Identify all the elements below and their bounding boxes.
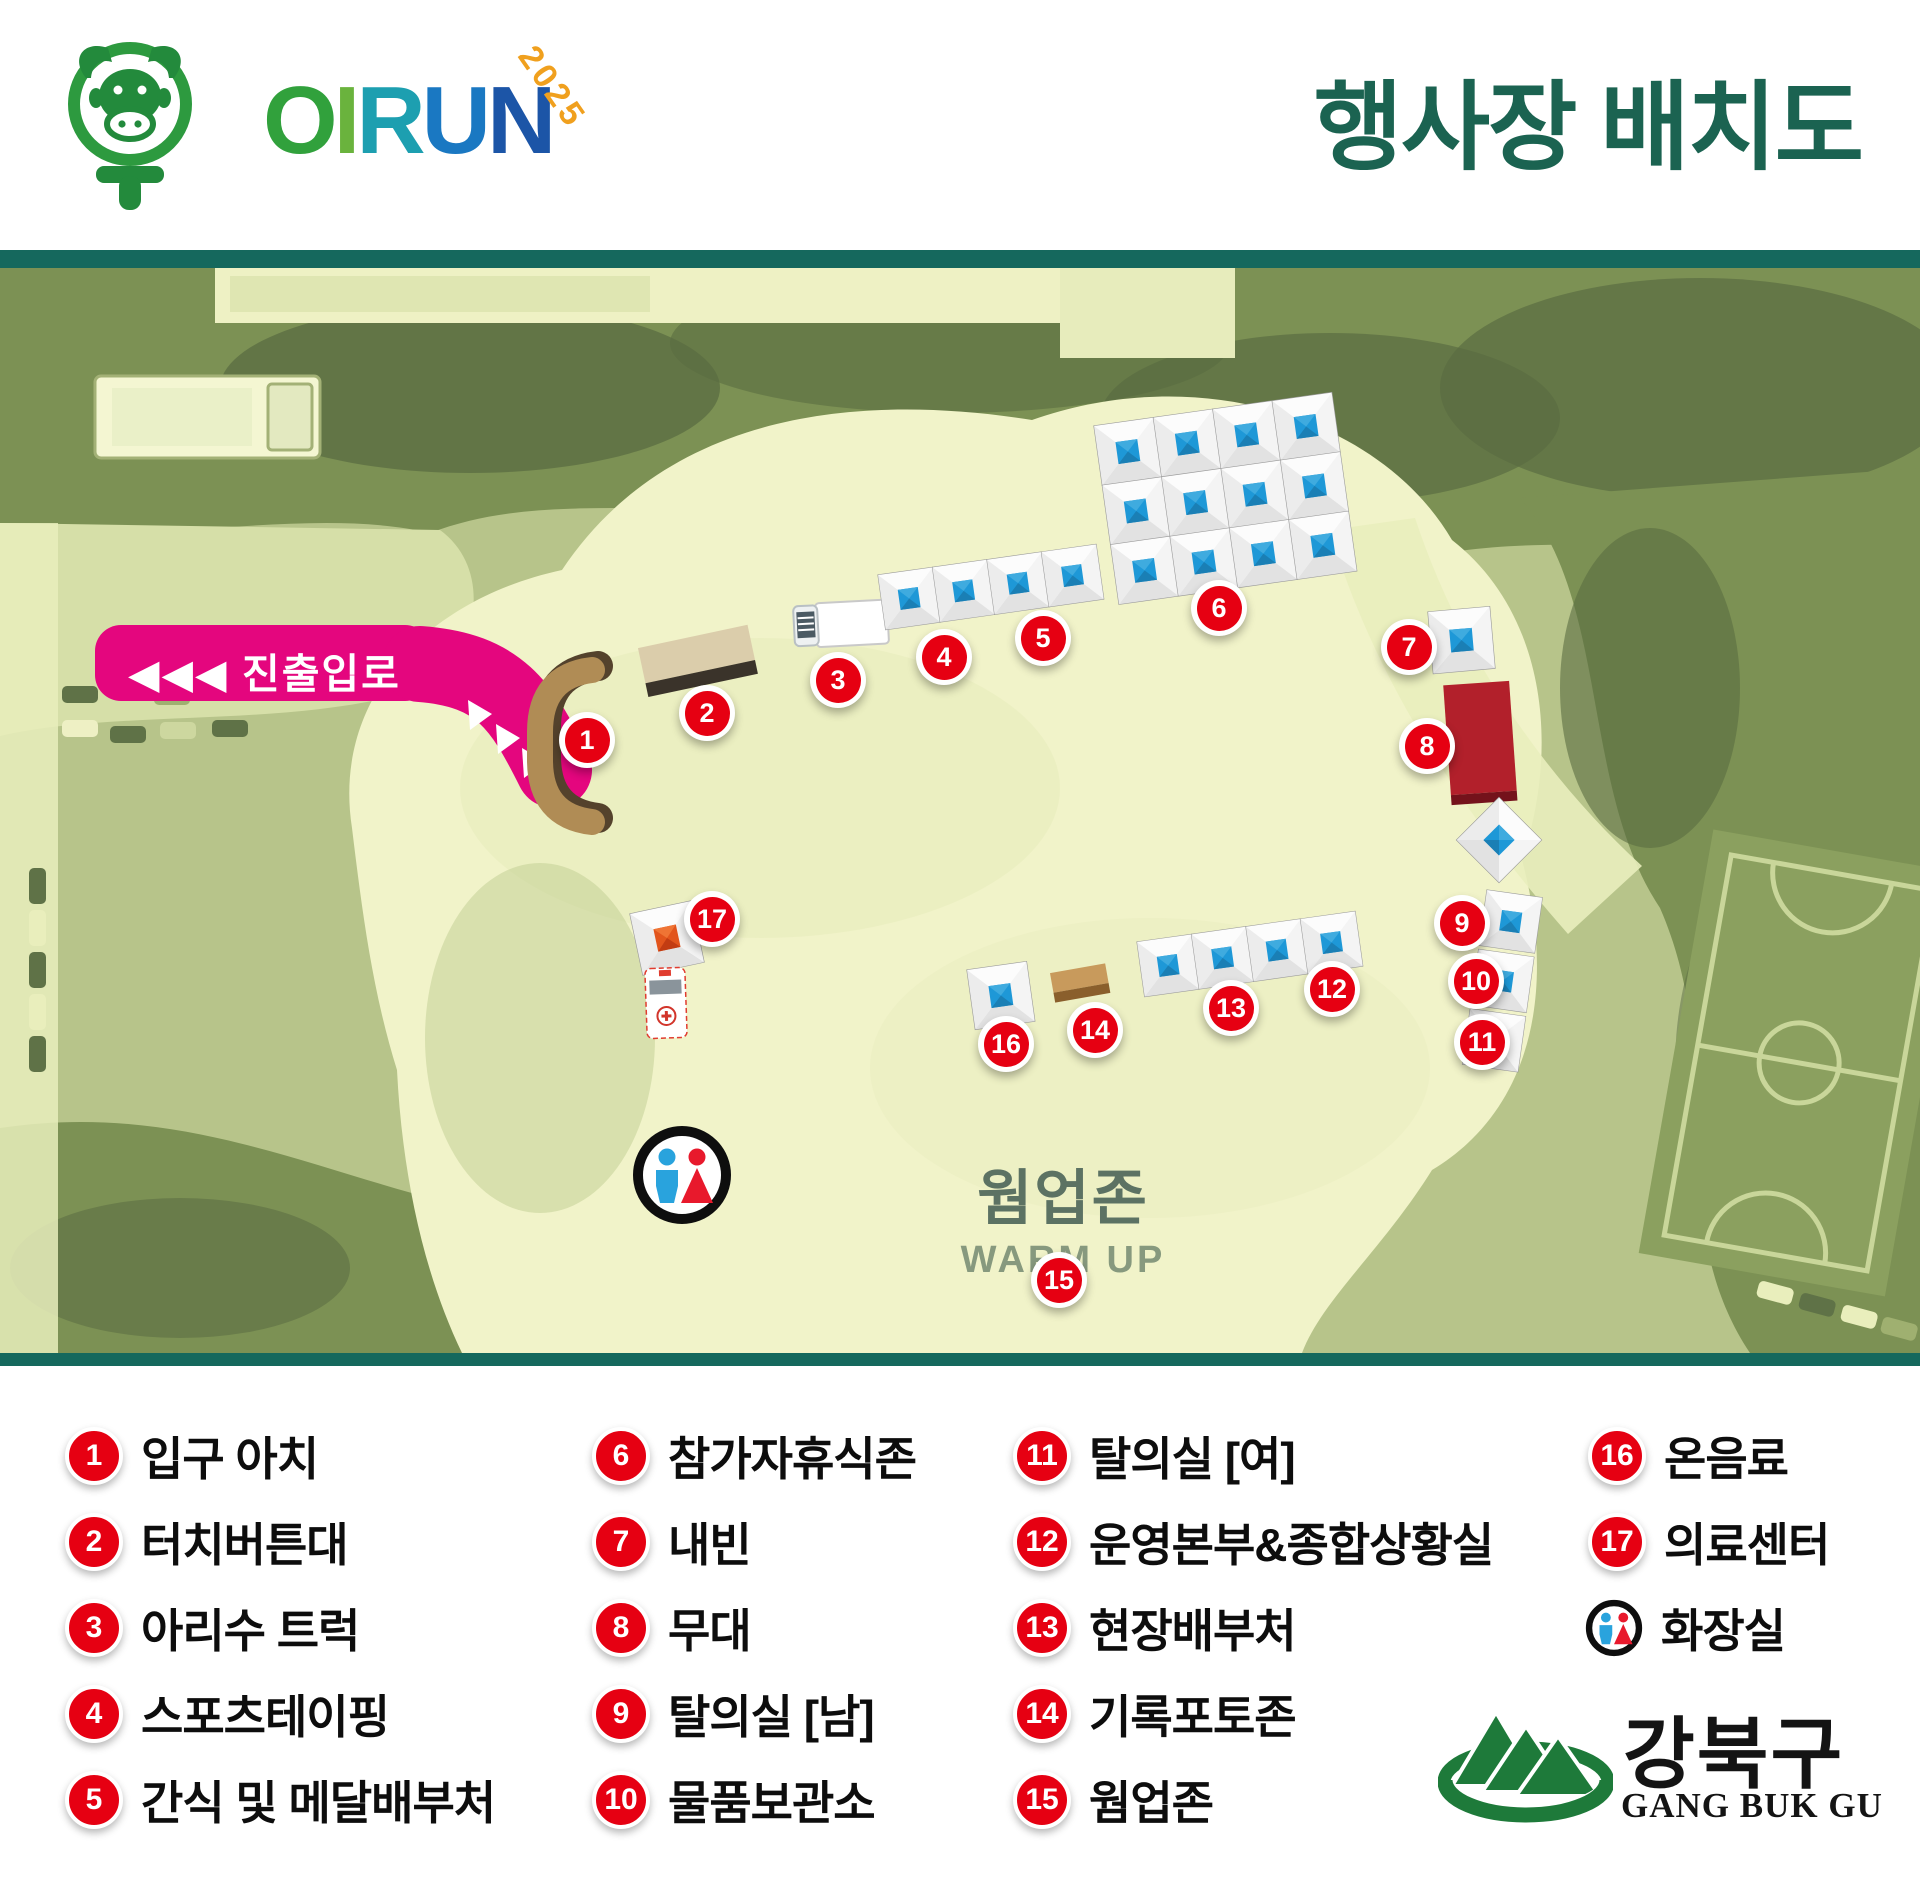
legend-badge: 16	[1588, 1427, 1646, 1485]
map-marker-15: 15	[1031, 1252, 1087, 1308]
legend-badge: 8	[592, 1599, 650, 1657]
map-marker-10: 10	[1448, 953, 1504, 1009]
header: OIRUN 2025 행사장 배치도	[0, 0, 1920, 250]
legend-item-2: 2터치버튼대	[65, 1509, 348, 1575]
gu-name-english: GANG BUK GU	[1621, 1786, 1883, 1826]
logo-wordmark: OIRUN	[263, 66, 552, 176]
water-truck	[793, 600, 889, 649]
map-marker-5: 5	[1015, 610, 1071, 666]
toilet-icon	[1585, 1599, 1643, 1657]
legend-badge: 7	[592, 1513, 650, 1571]
map-marker-17: 17	[684, 891, 740, 947]
legend-item-3: 3아리수 트럭	[65, 1595, 359, 1661]
legend-item-8: 8무대	[592, 1595, 751, 1661]
legend-badge: 13	[1013, 1599, 1071, 1657]
entrance-path-label: ◀◀◀ 진출입로	[128, 640, 401, 700]
tent-grid-6	[1094, 393, 1357, 605]
warmup-korean: 웜업존	[961, 1150, 1166, 1237]
legend-badge: 1	[65, 1427, 123, 1485]
map-marker-13: 13	[1203, 980, 1259, 1036]
legend-item-toilet: 화장실	[1585, 1595, 1785, 1661]
legend-badge: 14	[1013, 1685, 1071, 1743]
map-marker-7: 7	[1381, 619, 1437, 675]
bull-icon	[58, 28, 208, 228]
legend-badge: 2	[65, 1513, 123, 1571]
legend-item-6: 6참가자휴식존	[592, 1423, 916, 1489]
map-marker-4: 4	[916, 629, 972, 685]
legend-item-7: 7내빈	[592, 1509, 751, 1575]
legend-item-17: 17의료센터	[1588, 1509, 1829, 1575]
parked-truck	[95, 376, 320, 458]
page-title: 행사장 배치도	[1314, 48, 1862, 189]
legend-badge: 9	[592, 1685, 650, 1743]
map-marker-3: 3	[810, 652, 866, 708]
legend-item-13: 13현장배부처	[1013, 1595, 1296, 1661]
legend-badge: 17	[1588, 1513, 1646, 1571]
event-logo: OIRUN 2025	[58, 28, 578, 228]
map-marker-12: 12	[1304, 961, 1360, 1017]
legend-badge: 10	[592, 1771, 650, 1829]
map-marker-14: 14	[1067, 1002, 1123, 1058]
tent-7	[1428, 607, 1495, 674]
map-marker-2: 2	[679, 685, 735, 741]
gangbukgu-logo: 강북구 GANG BUK GU	[1438, 1700, 1878, 1850]
map-marker-16: 16	[978, 1016, 1034, 1072]
map-marker-6: 6	[1191, 580, 1247, 636]
legend-item-1: 1입구 아치	[65, 1423, 318, 1489]
legend-item-11: 11탈의실 [여]	[1013, 1423, 1295, 1489]
legend-item-16: 16온음료	[1588, 1423, 1788, 1489]
legend-item-5: 5간식 및 메달배부처	[65, 1767, 495, 1833]
toilet-icon	[638, 1131, 726, 1219]
ambulance	[645, 967, 687, 1038]
map-marker-11: 11	[1454, 1014, 1510, 1070]
mountain-icon	[1438, 1700, 1613, 1825]
venue-map: ◀◀◀ 진출입로 웜업존 WARM UP 1 2 3 4 5 6 7 8 9 1…	[0, 268, 1920, 1353]
legend-badge: 6	[592, 1427, 650, 1485]
legend-badge: 15	[1013, 1771, 1071, 1829]
event-layout-poster: OIRUN 2025 행사장 배치도	[0, 0, 1920, 1898]
legend-badge: 3	[65, 1599, 123, 1657]
legend-item-12: 12운영본부&종합상황실	[1013, 1509, 1493, 1575]
map-marker-1: 1	[559, 712, 615, 768]
legend-badge: 12	[1013, 1513, 1071, 1571]
legend-item-10: 10물품보관소	[592, 1767, 875, 1833]
legend-item-9: 9탈의실 [남]	[592, 1681, 874, 1747]
top-divider-bar	[0, 250, 1920, 268]
map-marker-9: 9	[1434, 895, 1490, 951]
legend-item-14: 14기록포토존	[1013, 1681, 1296, 1747]
legend-badge: 5	[65, 1771, 123, 1829]
legend-item-15: 15웜업존	[1013, 1767, 1213, 1833]
legend-item-4: 4스포츠테이핑	[65, 1681, 389, 1747]
legend-badge: 4	[65, 1685, 123, 1743]
map-marker-8: 8	[1399, 718, 1455, 774]
legend-badge: 11	[1013, 1427, 1071, 1485]
